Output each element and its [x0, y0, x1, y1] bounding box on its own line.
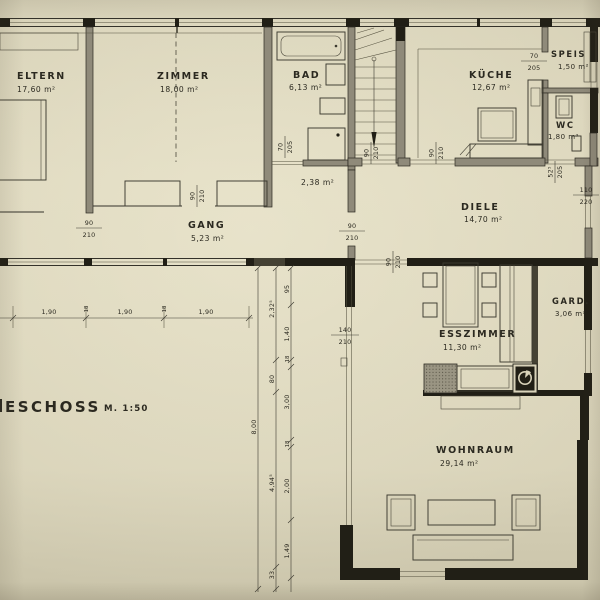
clipped-letter-fragment	[0, 399, 2, 412]
svg-text:1,90: 1,90	[41, 308, 56, 316]
gang-label: GANG	[188, 220, 225, 231]
svg-text:70: 70	[277, 143, 285, 152]
speis-label: SPEIS	[551, 49, 586, 59]
svg-text:205: 205	[556, 166, 564, 179]
sideboard-shelf	[457, 366, 513, 391]
abstell-area: 2,38 m²	[301, 178, 334, 187]
door-dim-speis: 70 205	[521, 52, 547, 72]
svg-text:18: 18	[162, 305, 168, 312]
gang-area: 5,23 m²	[191, 234, 224, 243]
diele-label: DIELE	[461, 202, 499, 213]
washbasin-1	[326, 64, 345, 85]
svg-text:90: 90	[428, 149, 436, 158]
kueche-area: 12,67 m²	[472, 83, 511, 92]
bad-area: 6,13 m²	[289, 83, 322, 92]
svg-text:210: 210	[198, 190, 206, 203]
room-kueche: KÜCHE 12,67 m²	[418, 49, 543, 158]
svg-text:18: 18	[84, 305, 90, 312]
dining-table	[443, 263, 478, 327]
zimmer-area: 18,00 m²	[160, 85, 199, 94]
door-dim-kueche: 90 210	[428, 142, 446, 164]
wc-sink	[556, 96, 572, 118]
room-gard: GARD. 3,06 m²	[500, 265, 590, 362]
svg-text:95: 95	[283, 285, 291, 294]
room-speis: SPEIS 1,50 m²	[551, 32, 596, 82]
svg-text:90: 90	[363, 149, 371, 158]
speis-area: 1,50 m²	[558, 63, 589, 71]
zimmer-closet-left	[125, 181, 180, 206]
svg-text:90: 90	[348, 222, 357, 230]
bench	[441, 396, 520, 409]
svg-text:2,00: 2,00	[283, 478, 291, 493]
room-wc: WC 1,80 m²	[548, 96, 581, 151]
svg-text:1,90: 1,90	[198, 308, 213, 316]
shower	[308, 128, 345, 160]
svg-text:210: 210	[437, 147, 445, 160]
diele-area: 14,70 m²	[464, 215, 503, 224]
svg-text:210: 210	[339, 338, 352, 346]
eltern-bed	[0, 100, 46, 180]
svg-text:33: 33	[268, 571, 276, 580]
door-dim-terrace: 140 210	[331, 326, 359, 346]
svg-text:210: 210	[394, 256, 402, 269]
plan-scale: M. 1:50	[104, 404, 149, 414]
eltern-closet	[0, 33, 78, 50]
dining-chair	[423, 273, 437, 287]
svg-text:2,32⁵: 2,32⁵	[268, 300, 276, 318]
sideboard-hatched	[424, 364, 457, 393]
bad-label: BAD	[293, 70, 320, 81]
door-dim-gang-diele: 90 210	[339, 222, 365, 242]
svg-text:90: 90	[85, 219, 94, 227]
staircase	[355, 28, 396, 155]
gard-area: 3,06 m²	[555, 310, 586, 318]
svg-text:90: 90	[189, 192, 197, 201]
plan-title: ESCHOSS	[5, 398, 101, 416]
eltern-area: 17,60 m²	[17, 85, 56, 94]
wohnraum-walls	[340, 266, 588, 580]
wc-area: 1,80 m²	[548, 133, 579, 141]
title-block: ESCHOSS M. 1:50	[0, 398, 149, 416]
kitchen-table	[478, 108, 516, 141]
door-dim-stair: 90 210	[363, 142, 381, 164]
room-esszimmer: ESSZIMMER 11,30 m²	[423, 263, 537, 409]
wohnraum-area: 29,14 m²	[440, 459, 479, 468]
room-wohnraum: WOHNRAUM 29,14 m²	[387, 445, 540, 560]
room-diele: DIELE 14,70 m²	[461, 202, 503, 224]
room-eltern: ELTERN 17,60 m²	[0, 33, 262, 180]
esszimmer-label: ESSZIMMER	[439, 329, 516, 340]
svg-text:70: 70	[530, 52, 539, 60]
svg-text:110: 110	[580, 186, 593, 194]
washbasin-2	[320, 98, 345, 114]
dining-chair	[482, 303, 496, 317]
zimmer-label: ZIMMER	[157, 71, 210, 82]
dim-chain-horizontal: 1,90 1,90 1,90 18 18	[0, 305, 253, 328]
svg-text:1,49: 1,49	[283, 543, 291, 558]
svg-text:80: 80	[268, 375, 276, 384]
svg-text:18: 18	[285, 440, 291, 447]
door-dim-bad: 70 205	[277, 136, 295, 158]
kitchen-counter-south	[470, 144, 543, 158]
svg-text:90: 90	[385, 258, 393, 267]
wc-label: WC	[556, 120, 575, 130]
room-gang: GANG 5,23 m²	[188, 220, 225, 243]
door-dim-esszimmer-terrace: 90 210	[385, 251, 403, 273]
svg-text:210: 210	[372, 147, 380, 160]
sofa	[413, 535, 513, 560]
svg-text:210: 210	[346, 234, 359, 242]
eltern-label: ELTERN	[17, 71, 66, 82]
wardrobe-closet	[500, 265, 532, 362]
kitchen-counter-east	[528, 80, 543, 145]
room-zimmer: ZIMMER 18,00 m²	[125, 33, 267, 206]
coffee-table	[428, 500, 495, 525]
svg-text:3,00: 3,00	[283, 394, 291, 409]
zimmer-closet-right	[217, 181, 267, 206]
wohnraum-label: WOHNRAUM	[436, 445, 515, 456]
door-dim-zimmer: 90 210	[189, 185, 207, 207]
dining-chair	[482, 273, 496, 287]
door-dim-eltern: 90 210	[76, 219, 102, 239]
stair-direction-arrow	[371, 132, 376, 148]
door-dim-wc: 52⁵ 205	[547, 161, 565, 183]
kueche-label: KÜCHE	[469, 70, 513, 81]
svg-text:8,00: 8,00	[250, 419, 258, 434]
floor-plan-drawing: ELTERN 17,60 m² ZIMMER 18,00 m² BAD 6,13…	[0, 0, 600, 600]
svg-text:52⁵: 52⁵	[547, 166, 555, 178]
svg-text:1,90: 1,90	[117, 308, 132, 316]
dim-chain-vertical: 95 2,32⁵ 1,40 18 80 3,00 8,00 18 4,94⁵ 2…	[250, 265, 294, 592]
svg-text:210: 210	[83, 231, 96, 239]
svg-text:205: 205	[286, 141, 294, 154]
esszimmer-area: 11,30 m²	[443, 343, 482, 352]
svg-text:220: 220	[580, 198, 593, 206]
gard-label: GARD.	[552, 296, 590, 306]
svg-text:4,94⁵: 4,94⁵	[268, 474, 276, 492]
svg-text:205: 205	[528, 64, 541, 72]
svg-text:140: 140	[339, 326, 352, 334]
dining-chair	[423, 303, 437, 317]
svg-text:18: 18	[285, 355, 291, 362]
svg-text:1,40: 1,40	[283, 326, 291, 341]
floor-plan-sheet: ELTERN 17,60 m² ZIMMER 18,00 m² BAD 6,13…	[0, 0, 600, 600]
